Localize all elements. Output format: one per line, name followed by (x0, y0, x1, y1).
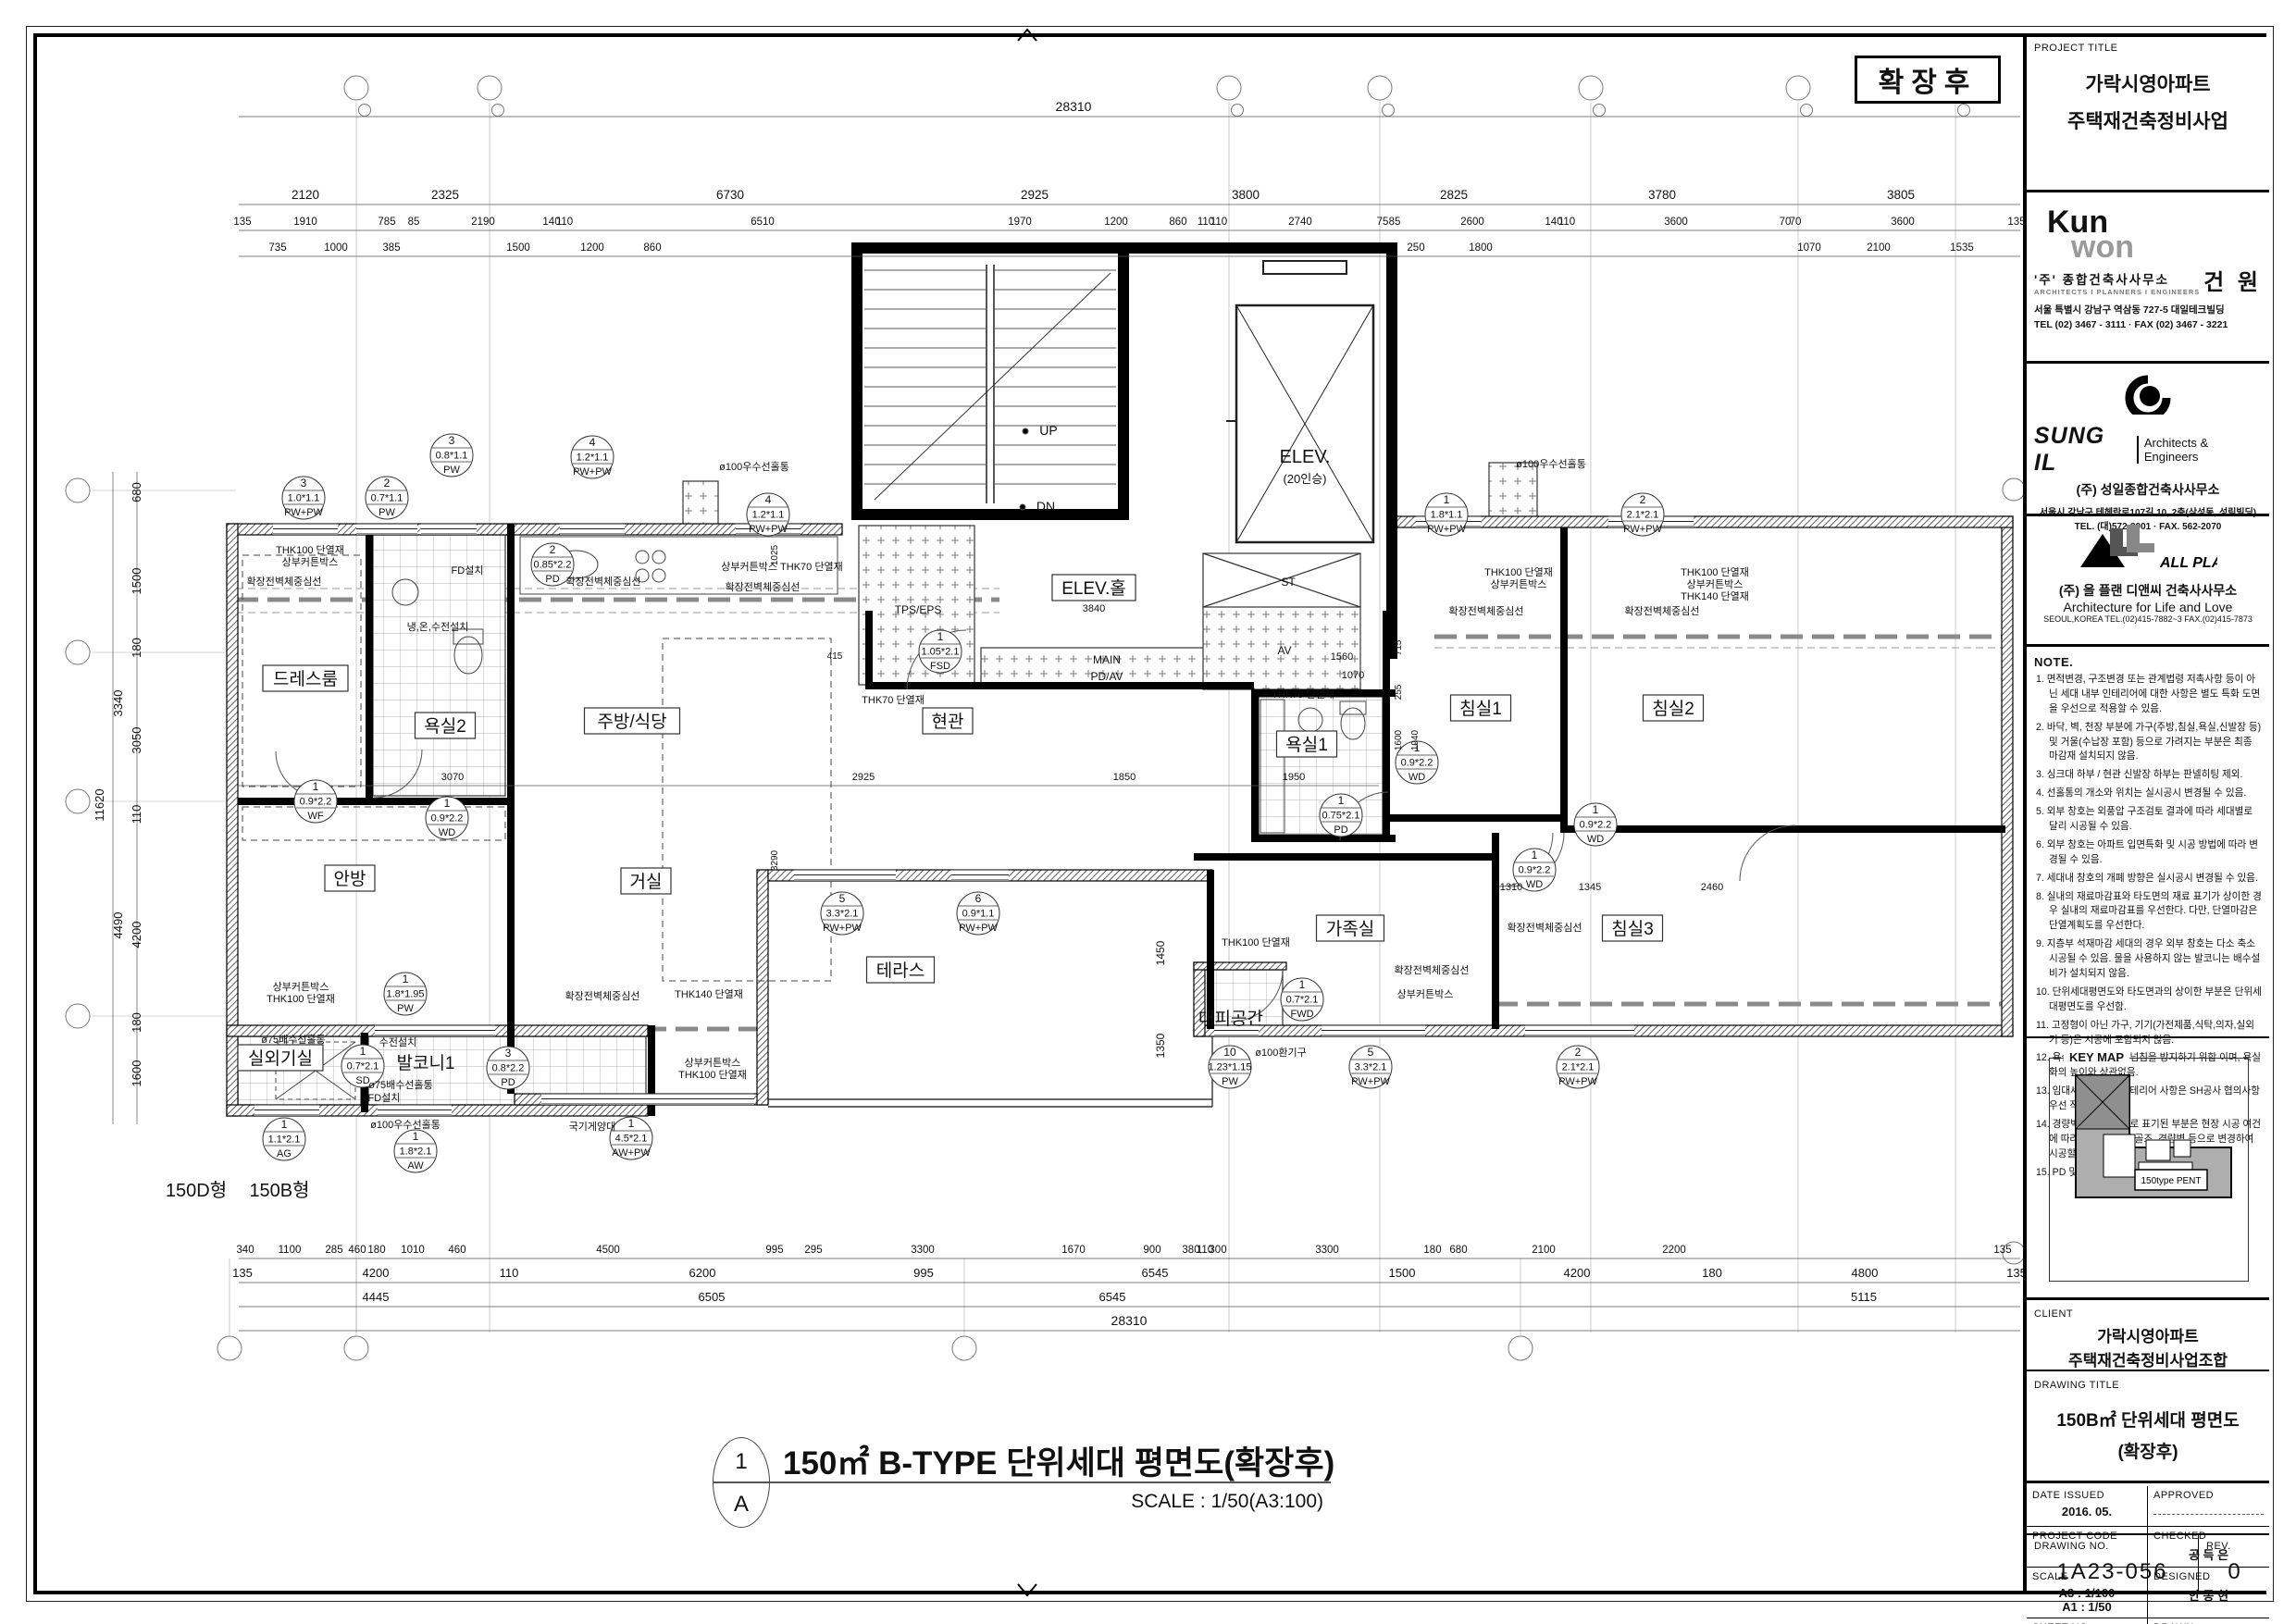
window-tag: 11.8*1.1PW+PW (1425, 493, 1468, 536)
tag-type: AW (407, 1160, 424, 1172)
allplan-firm: (주) 올 플랜 디앤씨 건축사사무소 (2034, 581, 2262, 600)
dim-text: 2325 (431, 188, 459, 202)
tag-type: PW+PW (1351, 1076, 1390, 1087)
scale-a1: A1 : 1/50 (2062, 1600, 2111, 1614)
room-label: 현관 (923, 708, 973, 734)
dim-text: 300 (1209, 1245, 1226, 1256)
tag-number: 10 (1223, 1046, 1236, 1059)
grid-bubble-sub (1383, 105, 1395, 117)
tag-size: 0.9*2.2 (300, 797, 332, 808)
room-name: 드레스룸 (273, 669, 338, 689)
annotation: 상부커튼박스 (273, 981, 329, 993)
tag-type: WD (439, 827, 455, 838)
room-label: 욕실1 (1276, 731, 1336, 757)
room-label: 거실 (621, 868, 671, 894)
plan-label: 1345 (1579, 882, 1601, 893)
tag-type: WF (307, 811, 323, 822)
tag-size: 0.9*2.2 (1580, 820, 1612, 831)
tag-size: 1.2*1.1 (577, 452, 609, 464)
revision-stamp: 확장후 (1855, 56, 2001, 104)
tag-number: 1 (1338, 794, 1345, 807)
dim-text: 2600 (1460, 217, 1484, 228)
tag-size: 1.8*1.1 (1431, 510, 1463, 521)
keymap-frame: 150type PENT (2049, 1058, 2249, 1282)
dim-text: 6730 (716, 188, 744, 202)
drawing-title-line2: (확장후) (2117, 1443, 2178, 1462)
dim-text: 995 (913, 1266, 934, 1280)
note-item: 10. 단위세대평면도와 타도면과의 상이한 부분은 단위세대평면도를 우선함. (2049, 986, 2262, 1015)
sungil-name: SUNG IL (2034, 423, 2131, 477)
tag-type: FWD (1290, 1009, 1313, 1020)
title-block: PROJECT TITLE 가락시영아파트 주택재건축정비사업 Kun won … (2023, 37, 2269, 1591)
sungil-firm: (주) 성일종합건축사사무소 (2034, 480, 2262, 499)
caption-scale: SCALE : 1/50(A3:100) (713, 1491, 1323, 1513)
window-tag: 22.1*2.1PW+PW (1621, 493, 1664, 536)
dim-text-left: 1500 (130, 568, 143, 595)
tag-size: 0.9*1.1 (962, 909, 995, 920)
window (378, 1105, 452, 1116)
sungil-section: SUNG IL Architects & Engineers (주) 성일종합건… (2027, 366, 2269, 516)
room-name: 주방/식당 (597, 712, 666, 732)
window (794, 870, 896, 881)
window-tag: 14.5*2.1AW+PW (610, 1117, 652, 1159)
tag-size: 0.75*2.1 (1322, 811, 1360, 822)
annotation: 확장전벽체중심선 (1508, 922, 1582, 934)
plan-label: 150D형 (166, 1180, 227, 1201)
tag-number: 1 (1444, 493, 1450, 506)
window-tag: 41.2*1.1PW+PW (571, 436, 614, 478)
plan-label: 3840 (1083, 603, 1105, 614)
keymap-drawing: 150type PENT (2050, 1059, 2246, 1279)
plan-label: UP (1039, 423, 1057, 438)
window-tag: 10.7*2.1FWD (1281, 978, 1323, 1021)
tag-size: 2.1*2.1 (1627, 510, 1659, 521)
grid-bubble (1579, 76, 1603, 100)
tag-type: PW+PW (749, 524, 788, 535)
note-label: NOTE. (2034, 655, 2262, 669)
dim-text: 75 (1377, 217, 1389, 228)
plan-label: MAIN (1093, 653, 1121, 666)
tag-type: PW (443, 465, 460, 476)
tag-number: 4 (590, 436, 596, 449)
tag-number: 1 (313, 780, 319, 793)
tag-size: 0.7*2.1 (1286, 995, 1319, 1006)
dim-text: 995 (765, 1245, 783, 1256)
tag-size: 0.9*2.2 (1401, 758, 1433, 769)
room-label: 안방 (325, 865, 375, 891)
room-label: 테라스 (867, 957, 935, 983)
dim-text: 6545 (1142, 1266, 1169, 1280)
window-tag: 53.3*2.1PW+PW (821, 892, 863, 935)
plan-label: (20인승) (1283, 472, 1326, 486)
plan-label: 3290 (770, 849, 780, 871)
window-tag: 22.1*2.1PW+PW (1557, 1046, 1599, 1088)
dim-text: 70 (1790, 217, 1802, 228)
plan-label: 1940 (1410, 729, 1421, 750)
plan-label: 715 (1394, 639, 1404, 655)
tag-size: 1.1*2.1 (268, 1134, 301, 1146)
dim-overall: 28310 (1056, 99, 1092, 114)
grid-bubble (1217, 76, 1241, 100)
tag-type: PW+PW (1427, 524, 1466, 535)
annotation: 상부커튼박스 (685, 1057, 741, 1069)
window (375, 1025, 495, 1036)
dim-text: 2740 (1288, 217, 1312, 228)
annotation: THK140 단열재 (675, 988, 743, 1000)
dim-text: 110 (556, 217, 573, 228)
tag-number: 2 (550, 543, 556, 556)
annotation: 상부커튼박스 (1397, 988, 1454, 1000)
dim-text: 4800 (1852, 1266, 1879, 1280)
window-tag: 30.8*2.2PD (487, 1047, 529, 1089)
tag-number: 1 (403, 973, 409, 986)
tag-type: WD (1587, 834, 1604, 845)
note-item: 7. 세대내 창호의 개폐 방향은 실시공시 변경될 수 있음. (2049, 872, 2262, 886)
plan-label: 255 (1394, 684, 1404, 700)
plan-label: 1950 (1283, 772, 1305, 783)
dim-text: 735 (268, 242, 286, 254)
tag-size: 1.23*1.15 (1208, 1062, 1251, 1073)
hatched-regions (238, 463, 1537, 1105)
dim-text: 1500 (506, 242, 530, 254)
sungil-sub: Architects & Engineers (2137, 436, 2262, 464)
annotation: 확장전벽체중심선 (565, 990, 640, 1002)
room-label: 드레스룸 (263, 665, 348, 691)
window (560, 524, 625, 535)
tag-size: 3.3*2.1 (1355, 1062, 1387, 1073)
dim-text: 460 (448, 1245, 465, 1256)
dim-text: 460 (348, 1245, 366, 1256)
dim-text: 860 (643, 242, 661, 254)
dim-text: 6505 (699, 1290, 726, 1304)
tag-size: 1.8*2.1 (400, 1147, 432, 1158)
tag-size: 3.3*2.1 (826, 909, 859, 920)
rev-value: 0 (2206, 1559, 2262, 1585)
dim-text: 385 (382, 242, 400, 254)
svg-text:150type PENT: 150type PENT (2141, 1176, 2201, 1186)
kunwon-firm-big: 건 원 (2203, 264, 2262, 296)
tag-size: 0.7*2.1 (347, 1061, 379, 1072)
tag-number: 4 (765, 493, 772, 506)
allplan-eng: Architecture for Life and Love (2034, 600, 2262, 614)
grid-bubble (66, 478, 90, 502)
room-label: 주방/식당 (584, 708, 679, 734)
room-name: 실외기실 (248, 1048, 313, 1069)
tag-size: 1.0*1.1 (288, 493, 320, 504)
room-label: 대피공간 (1198, 1009, 1263, 1029)
room-name: 테라스 (876, 961, 925, 981)
annotation: ø100우수선홀통 (719, 461, 789, 473)
tag-type: WD (1526, 879, 1543, 890)
dim-text: 110 (1210, 217, 1227, 228)
window-tag: 10.9*2.2WD (426, 797, 468, 839)
kunwon-section: Kun won '주' 종합건축사사무소 건 원 ARCHITECTS I PL… (2027, 195, 2269, 364)
dim-text: 1010 (401, 1245, 425, 1256)
dim-overall: 28310 (1111, 1313, 1148, 1328)
tag-number: 2 (1640, 493, 1646, 506)
tag-type: PW (1222, 1076, 1238, 1087)
tag-type: FSD (930, 661, 950, 672)
room-name: 가족실 (1326, 919, 1374, 939)
annotation: 상부커튼박스 (282, 556, 339, 568)
dim-text: 6510 (751, 217, 775, 228)
plan-label: ELEV. (1280, 447, 1331, 467)
window (254, 1105, 319, 1116)
keymap-section: 150type PENT KEY MAP (2027, 1041, 2269, 1300)
dim-text: 1670 (1061, 1245, 1086, 1256)
fold-marks (1018, 30, 1036, 1595)
window-tag: 10.75*2.1PD (1320, 794, 1362, 837)
tag-number: 5 (1368, 1046, 1374, 1059)
tag-type: PW (397, 1003, 414, 1014)
dim-text-left: 680 (130, 482, 143, 502)
dim-text-left: 180 (130, 1012, 143, 1033)
tag-type: PW+PW (823, 923, 862, 934)
tag-number: 1 (1532, 849, 1538, 862)
annotation: 상부커튼박스 (1687, 578, 1744, 590)
dim-text: 85 (408, 217, 420, 228)
room-label: 실외기실 (238, 1045, 323, 1071)
plan-label: TPS/EPS (895, 603, 942, 616)
room-name: ELEV.홀 (1061, 578, 1126, 599)
stair (864, 265, 1116, 510)
dim-text: 295 (804, 1245, 822, 1256)
annotation: 확장전벽체중심선 (1449, 605, 1524, 617)
window (1322, 1025, 1425, 1036)
window-tag: 53.3*2.1PW+PW (1349, 1046, 1392, 1088)
annotation: ø100우수선홀통 (1516, 458, 1586, 470)
tag-size: 0.8*2.2 (492, 1063, 525, 1074)
plan-label: 3070 (441, 772, 464, 783)
tag-number: 2 (1575, 1046, 1582, 1059)
note-section: NOTE. 1. 면적변경, 구조변경 또는 관계법령 저촉사항 등이 아닌 세… (2027, 650, 2269, 1038)
annotation: THK100 단열재 (276, 544, 344, 556)
annotation: 확장전벽체중심선 (726, 581, 800, 593)
tag-size: 0.9*2.2 (431, 813, 464, 824)
window (541, 1094, 754, 1105)
tag-number: 1 (1299, 978, 1306, 991)
client-label: CLIENT (2034, 1308, 2262, 1320)
date-value: 2016. 05. (2032, 1505, 2141, 1519)
note-item: 1. 면적변경, 구조변경 또는 관계법령 저촉사항 등이 아닌 세대 내부 인… (2049, 673, 2262, 717)
plan-label: 1850 (1113, 772, 1136, 783)
dim-text: 285 (325, 1245, 342, 1256)
drawing-sheet: 2831028310212023256730292538002825378038… (0, 0, 2296, 1624)
dim-text: 900 (1143, 1245, 1160, 1256)
note-item: 9. 지층부 석재마감 세대의 경우 외부 창호는 다소 축소 시공될 수 있음… (2049, 937, 2262, 982)
room-name: 욕실2 (424, 716, 466, 737)
dim-text: 785 (378, 217, 395, 228)
dim-text: 3800 (1232, 188, 1260, 202)
dim-text: 3300 (911, 1245, 935, 1256)
drawing-title-line1: 150B㎡ 단위세대 평면도 (2056, 1411, 2239, 1431)
window-tag: 11.05*2.1FSD (919, 630, 962, 673)
dim-text-left: 3050 (130, 727, 143, 754)
annotation: THK100 단열재 (1222, 936, 1290, 948)
annotation: THK100 단열재 (1484, 566, 1553, 578)
annotation: 확장전벽체중심선 (1395, 964, 1470, 976)
allplan-logo-icon: ALL PLAN (2079, 525, 2217, 573)
drawing-no-row: DRAWING NO. 1A23-056 REV. 0 (2027, 1533, 2269, 1591)
project-title-line1: 가락시영아파트 (2034, 67, 2262, 104)
room-label: 가족실 (1317, 915, 1384, 941)
grid-bubble (66, 789, 90, 813)
dim-text-left: 1600 (130, 1060, 143, 1087)
tag-number: 2 (384, 477, 391, 490)
sungil-address: 서울시 강남구 테헤란로107길 10, 2층(삼성동, 성림빌딩) (2034, 504, 2262, 518)
tag-number: 1 (937, 630, 944, 643)
room-label: 욕실2 (415, 713, 475, 738)
room-name: 침실2 (1652, 699, 1694, 719)
grid-bubble (344, 76, 368, 100)
dim-text-left: 3340 (111, 690, 125, 717)
tag-number: 1 (413, 1130, 419, 1143)
sungil-logo-icon (2123, 374, 2173, 415)
window-tag: 31.0*1.1PW+PW (282, 477, 325, 519)
grid-bubble-sub (492, 105, 504, 117)
grid-bubble (66, 1004, 90, 1028)
tag-type: PW+PW (573, 466, 612, 477)
tag-size: 0.9*2.2 (1519, 865, 1551, 876)
dim-text: 135 (233, 217, 251, 228)
room-name: 침실1 (1459, 699, 1502, 719)
room-label: 침실2 (1643, 695, 1703, 721)
annotation: 상부커튼박스 (1491, 578, 1547, 590)
plan-label: AV (1277, 644, 1291, 657)
plan-label: DN (1036, 499, 1055, 514)
dim-text: 250 (1407, 242, 1424, 254)
plan-label: 1600 (1394, 729, 1404, 750)
note-item: 2. 바닥, 벽, 천장 부분에 가구(주방,침실,욕실,신발장 등) 및 거울… (2049, 721, 2262, 765)
annotation: 확장전벽체중심선 (247, 576, 322, 588)
plan-label: 150B형 (249, 1180, 309, 1201)
tag-number: 1 (1593, 803, 1599, 816)
dim-text: 1970 (1008, 217, 1032, 228)
plan-label: 2460 (1701, 882, 1723, 893)
tag-type: PW+PW (959, 923, 998, 934)
tag-size: 0.8*1.1 (436, 451, 468, 462)
dim-text: 2100 (1532, 1245, 1556, 1256)
window-tag: 20.7*1.1PW (366, 477, 408, 519)
tag-number: 1 (281, 1118, 288, 1131)
room-label: ELEV.홀 (1052, 575, 1136, 601)
window-tag: 10.9*2.2WD (1574, 803, 1617, 846)
dim-text: 3780 (1648, 188, 1676, 202)
annotation: THK100 단열재 (267, 993, 335, 1005)
dim-text: 4200 (1564, 1266, 1591, 1280)
svg-text:ALL PLAN: ALL PLAN (2159, 555, 2217, 571)
keymap-label: KEY MAP (2064, 1050, 2129, 1064)
client-line2: 주택재건축정비사업조합 (2068, 1352, 2228, 1370)
approved-label: APPROVED (2153, 1490, 2264, 1501)
dim-text: 180 (1702, 1266, 1722, 1280)
dim-text: 860 (1169, 217, 1186, 228)
dim-text: 1000 (324, 242, 348, 254)
project-title-line2: 주택재건축정비사업 (2034, 104, 2262, 141)
plan-label: 1450 (1154, 940, 1167, 965)
grid-bubble (478, 76, 502, 100)
dim-text: 1070 (1797, 242, 1821, 254)
annotation: FD설치 (368, 1092, 401, 1104)
kunwon-logo: Kun won (2047, 210, 2262, 260)
room-label: 발코니1 (396, 1053, 454, 1073)
window-tag: 10.9*2.2WF (294, 780, 337, 823)
plan-label: ST (1281, 576, 1296, 589)
note-item: 8. 실내의 재료마감표와 타도면의 재료 표기가 상이한 경우 실내의 재료마… (2049, 890, 2262, 935)
grid-bubble (1786, 76, 1810, 100)
dim-text: 110 (500, 1266, 519, 1280)
allplan-tel: SEOUL,KOREA TEL.(02)415-7882~3 FAX.(02)4… (2034, 614, 2262, 624)
tag-number: 3 (449, 434, 455, 447)
annotation: ø75배수선홀통 (368, 1079, 433, 1091)
tag-type: PD (501, 1077, 515, 1088)
note-item: 3. 싱크대 하부 / 현관 신발장 하부는 판넬히팅 제외. (2049, 768, 2262, 783)
tag-type: PW (379, 507, 395, 518)
grid-bubble (1508, 1336, 1533, 1360)
drawing-title-section: DRAWING TITLE 150B㎡ 단위세대 평면도 (확장후) (2027, 1374, 2269, 1483)
dim-text: 6200 (689, 1266, 716, 1280)
grid-bubble-sub (1232, 105, 1244, 117)
window-tag: 30.8*1.1PW (430, 434, 473, 477)
note-item: 6. 외부 창호는 아파트 입면특화 및 시공 방법에 따라 변경될 수 있음. (2049, 838, 2262, 868)
dim-text: 180 (1423, 1245, 1441, 1256)
grid-bubble (2003, 478, 2023, 501)
drawing-no-value: 1A23-056 (2034, 1559, 2191, 1585)
dim-text: 4445 (363, 1290, 390, 1304)
tag-number: 3 (301, 477, 307, 490)
annotation: FD설치 (452, 564, 484, 576)
dim-text-left: 11620 (93, 788, 106, 821)
tag-size: 0.85*2.2 (534, 560, 572, 571)
tag-number: 3 (505, 1047, 512, 1060)
dim-text: 6545 (1099, 1290, 1126, 1304)
dim-text: 180 (367, 1245, 385, 1256)
room-name: 안방 (334, 869, 366, 889)
tag-type: AG (277, 1148, 292, 1159)
dim-text: 1200 (580, 242, 604, 254)
dim-text: 1100 (279, 1245, 302, 1256)
window (951, 870, 1009, 881)
dim-text: 4200 (363, 1266, 390, 1280)
tag-type: PW+PW (1558, 1076, 1597, 1087)
room-name: 대피공간 (1198, 1009, 1263, 1029)
grid-bubble (217, 1336, 242, 1360)
dim-text: 3600 (1664, 217, 1688, 228)
note-item: 5. 외부 창호는 외풍압 구조검토 결과에 따라 세대별로 달리 시공될 수 … (2049, 805, 2262, 835)
window-tag: 11.8*1.95PW (384, 973, 427, 1015)
annotation: 수전설치 (379, 1036, 416, 1048)
dim-text-left: 180 (130, 638, 143, 658)
grid-bubble (1368, 76, 1392, 100)
dim-text: 2200 (1662, 1245, 1686, 1256)
kunwon-firm: '주' 종합건축사사무소 (2034, 273, 2169, 287)
annotation: 냉,온,수전설치 (407, 621, 469, 633)
plan-label: 1025 (770, 544, 780, 565)
annotation: THK140 단열재 (1681, 590, 1749, 602)
dim-text: 1910 (293, 217, 317, 228)
dim-text: 135 (232, 1266, 253, 1280)
window (273, 524, 338, 535)
annotation: THK100 단열재 (678, 1069, 747, 1081)
tag-size: 1.05*2.1 (922, 647, 960, 658)
annotation: THK70 단열재 (1272, 688, 1334, 700)
annotation: ø75배수선홀통 (261, 1034, 326, 1046)
caption-number: 1 (714, 1449, 769, 1475)
dim-text: 1800 (1469, 242, 1493, 254)
room-label: 침실3 (1602, 915, 1662, 941)
plan-label: 1070 (1342, 670, 1364, 681)
dim-text: 3805 (1887, 188, 1915, 202)
